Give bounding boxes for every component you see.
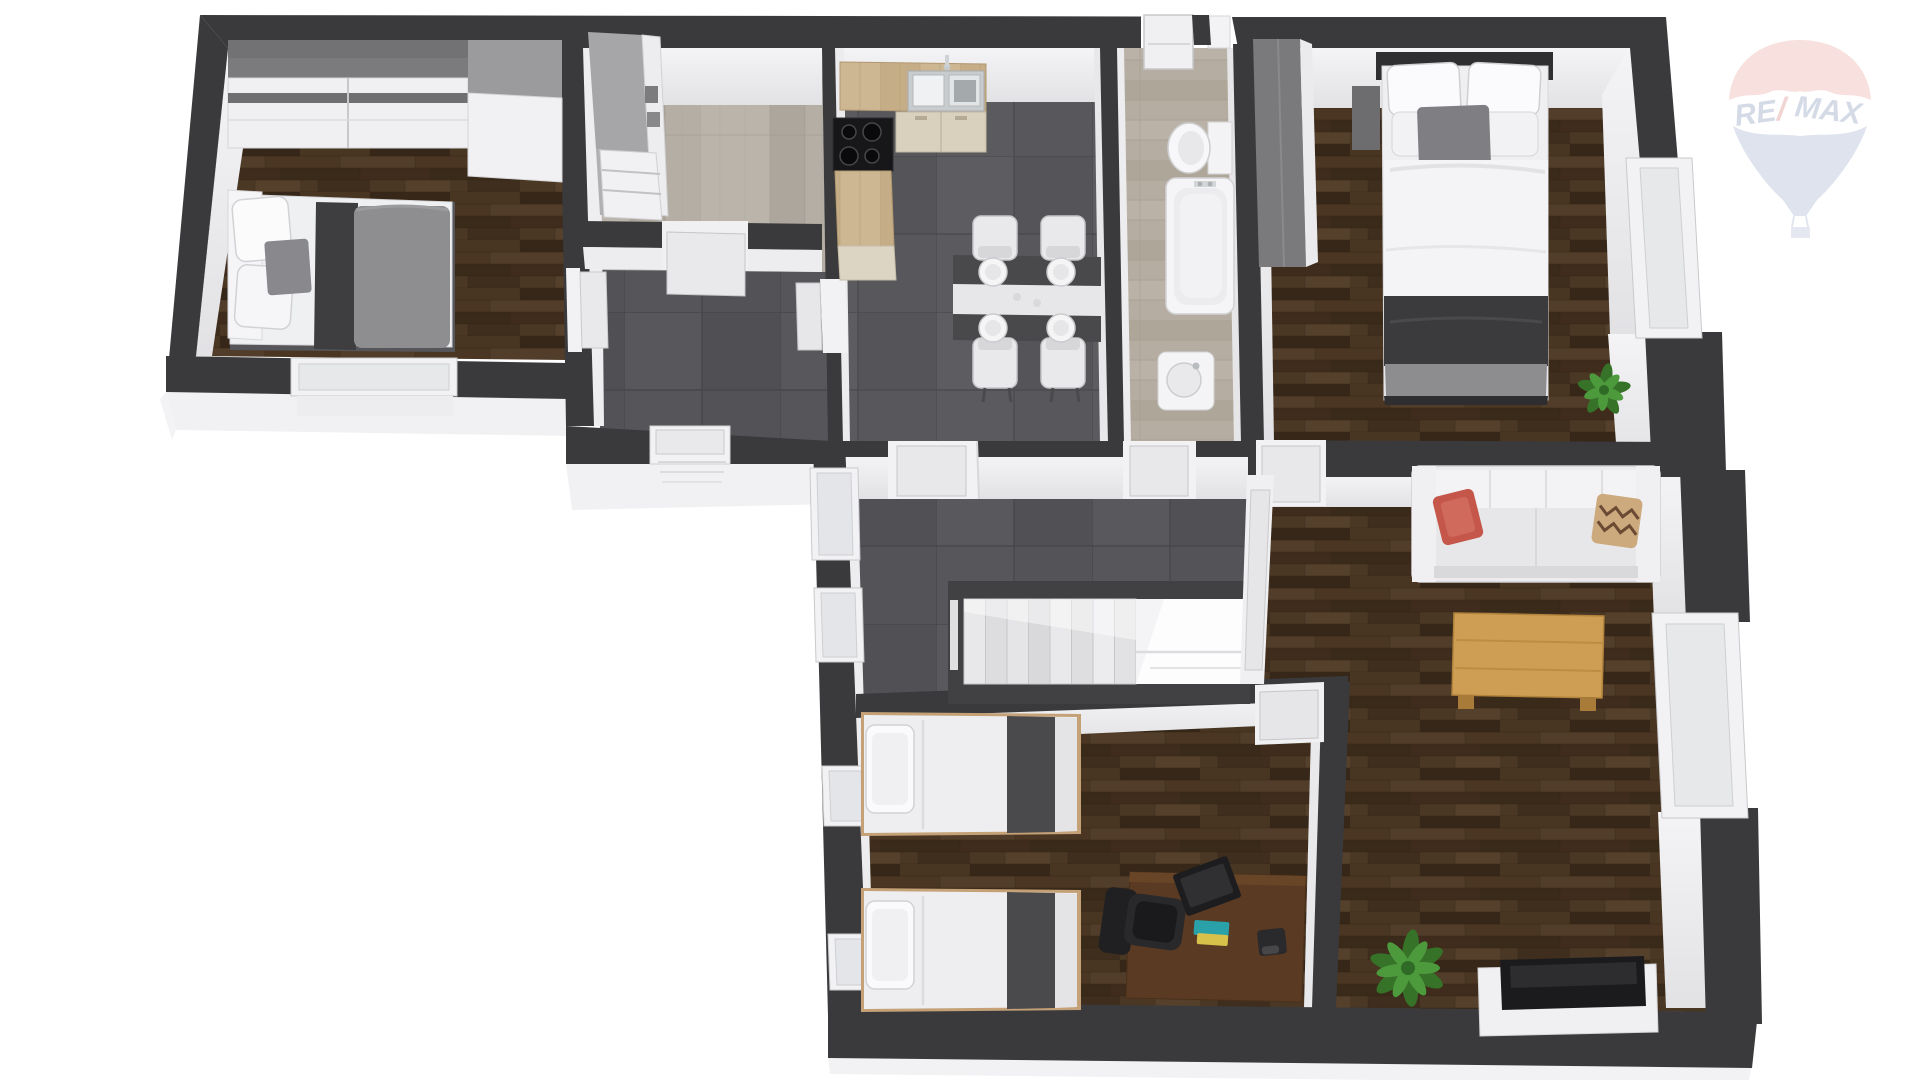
svg-text:RE: RE xyxy=(1732,94,1779,133)
